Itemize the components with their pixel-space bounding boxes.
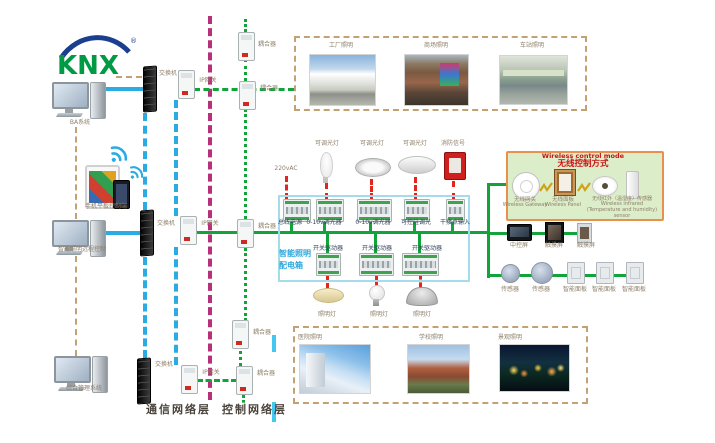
- module-red-mark: [241, 240, 247, 244]
- tan-link-line: [75, 256, 77, 356]
- module-face: [184, 368, 195, 373]
- fire-alarm-icon: [444, 152, 466, 180]
- school-photo: [407, 344, 470, 394]
- coupler-1a: [238, 32, 255, 61]
- module-slots: [362, 261, 391, 268]
- photo-detail: [440, 63, 459, 86]
- knx-logo: KNX ®: [53, 30, 139, 82]
- terminal-strip: [318, 201, 342, 204]
- screen-glass: [580, 227, 589, 239]
- dimmable-ceiling-lamp-icon: [398, 156, 436, 174]
- ip-gateway-1-label: IP网关: [194, 78, 222, 85]
- terminal-strip: [448, 201, 463, 204]
- alarm-face: [449, 158, 461, 173]
- factory-photo: [309, 54, 376, 106]
- mobile-control-label: 手机平板控制端: [66, 204, 146, 211]
- touch-screen-icon: [545, 222, 564, 243]
- module-red-mark: [184, 237, 190, 241]
- station-photo: [499, 55, 568, 105]
- network-switch-2: [140, 210, 154, 257]
- phone-screen: [116, 184, 127, 204]
- green-bus-row3: [197, 379, 237, 382]
- scene-label: 景观照明: [484, 335, 536, 342]
- tablet-screen: [89, 171, 116, 203]
- dimmable-lamp-icon: [320, 152, 333, 178]
- knx-logo-text: KNX: [57, 51, 119, 78]
- blue-backbone-switch: [143, 257, 147, 358]
- terminal-strip: [285, 201, 309, 204]
- knx-registered-mark: ®: [130, 37, 137, 45]
- module-red-mark: [243, 102, 249, 106]
- ip-gateway-3: [181, 365, 198, 394]
- photo-detail: [306, 353, 326, 388]
- module-red-mark: [240, 387, 246, 391]
- module-face: [242, 84, 253, 89]
- coupler-3b: [236, 366, 253, 395]
- wireless-panel-label-en: Wireless Panel: [544, 203, 582, 209]
- panel-keys: [630, 267, 640, 279]
- lamp-label: 照明灯: [309, 312, 345, 319]
- green-right-riser: [487, 183, 490, 278]
- network-switch-3: [137, 358, 151, 405]
- ip-gateway-1: [178, 70, 195, 99]
- central-screen-label: 中控屏: [505, 243, 533, 250]
- module-face: [239, 369, 250, 374]
- ba-system-label: BA系统: [50, 120, 110, 127]
- smart-panel-label: 智能面板: [588, 287, 620, 294]
- monitor-icon: [54, 356, 91, 383]
- wireless-ir-label-en: Wireless infrared (Temperature and humid…: [586, 202, 658, 219]
- terminal-strip: [318, 255, 339, 258]
- green-riser: [244, 19, 247, 32]
- touch-screen-label: 触摸屏: [541, 243, 567, 250]
- smart-panel-icon: [567, 262, 585, 284]
- terminal-strip: [406, 201, 428, 204]
- power-input-label: 220vAC: [272, 166, 300, 173]
- switch-actuator-label: 开关驱动器: [407, 246, 447, 253]
- smart-panel-label: 智能面板: [559, 287, 591, 294]
- landscape-photo: [499, 344, 570, 392]
- module-face: [235, 323, 246, 328]
- keyboard-icon: [56, 113, 83, 117]
- mall-photo: [404, 54, 469, 106]
- terminal-strip: [318, 271, 339, 274]
- coupler-2: [237, 219, 254, 248]
- wireless-signal-icon: [577, 179, 592, 198]
- green-branch-wireless: [489, 183, 506, 186]
- central-control-screen-icon: [507, 224, 532, 241]
- blue-link-pc1-switch1: [106, 87, 143, 91]
- coupler-1b-label: 耦合器: [256, 86, 282, 93]
- bulb-lamp-icon: [369, 285, 385, 301]
- comm-layer-label: 通信网络层: [146, 401, 211, 417]
- green-branch-panels: [583, 274, 597, 277]
- green-riser: [244, 59, 247, 81]
- module-face: [240, 222, 251, 227]
- cabinet-title-line2: 配电箱: [279, 261, 321, 270]
- cabinet-title-line1: 智能照明: [279, 249, 321, 258]
- terminal-strip: [361, 255, 392, 258]
- dimmer-1-label: 0-10v调光器: [302, 220, 346, 227]
- gateway-ring: [520, 180, 533, 193]
- sensor-label: 传感器: [496, 287, 524, 294]
- module-slots: [360, 207, 389, 214]
- dimmable-lamp-label: 可调光灯: [356, 141, 388, 148]
- ip-gateway-2-label: IP网关: [196, 221, 224, 228]
- hospital-photo: [299, 344, 371, 394]
- module-face: [241, 35, 252, 40]
- layer-divider-line: [208, 16, 212, 400]
- terminal-strip: [404, 271, 437, 274]
- dry-contact-label: 干接点输入: [436, 220, 474, 227]
- wireless-panel-icon: [554, 169, 576, 196]
- bulb-base: [373, 299, 379, 306]
- smart-panel-icon: [626, 262, 644, 284]
- module-red-mark: [236, 341, 242, 345]
- screen-glass: [510, 227, 529, 237]
- control-layer-label: 控制网络层: [222, 401, 287, 417]
- dimmable-downlight-icon: [355, 158, 391, 177]
- sensor-lens: [602, 183, 608, 189]
- coupler-3a-label: 耦合器: [249, 330, 275, 337]
- sensor-icon: [531, 262, 553, 284]
- photo-detail: [503, 70, 563, 76]
- lamp-label: 照明灯: [404, 312, 440, 319]
- ba-system-computer: [52, 82, 106, 120]
- photo-detail: [500, 345, 569, 391]
- module-red-mark: [182, 91, 188, 95]
- scene-label: 学校照明: [403, 335, 459, 342]
- monitor-icon: [52, 82, 89, 109]
- sensor-icon: [501, 264, 520, 283]
- scene-label: 医院照明: [284, 335, 336, 342]
- sensor-label: 传感器: [527, 287, 555, 294]
- dimmer-2-label: 0-10v调光器: [351, 220, 395, 227]
- knx-logo-icon: KNX ®: [53, 30, 139, 78]
- cyan-segment: [272, 335, 276, 352]
- terminal-strip: [359, 201, 390, 204]
- blue-backbone-switch: [143, 113, 147, 210]
- module-slots: [449, 207, 462, 214]
- green-branch-panels: [487, 274, 502, 277]
- dimmable-lamp-label: 可调光灯: [399, 141, 431, 148]
- scene-label: 商场照明: [406, 43, 466, 50]
- wireless-gateway-icon: [512, 172, 540, 200]
- coupler-1b: [239, 81, 256, 110]
- green-branch-screens: [487, 232, 507, 235]
- ip-gateway-2: [180, 216, 197, 245]
- green-riser: [244, 248, 247, 321]
- module-slots: [319, 207, 341, 214]
- wireless-signal-icon: [539, 179, 554, 198]
- tower-icon: [90, 82, 106, 119]
- scr-dimmer-label: 可控硅调光: [398, 220, 434, 227]
- terminal-strip: [404, 255, 437, 258]
- wireless-gateway-label-en: Wireless Gateway: [500, 203, 550, 209]
- switch-actuator-3: [402, 253, 439, 276]
- module-slots: [407, 207, 427, 214]
- green-branch-panels: [613, 274, 627, 277]
- wireless-ir-sensor-icon: [592, 176, 618, 196]
- coupler-3a: [232, 320, 249, 349]
- scene-label: 车站照明: [502, 43, 562, 50]
- terminal-strip: [361, 271, 392, 274]
- switch-actuator-label: 开关驱动器: [357, 246, 397, 253]
- remote-control-label: 智能照明远程控制: [42, 247, 122, 254]
- green-riser: [244, 109, 247, 219]
- lamp-base: [323, 177, 328, 183]
- module-red-mark: [185, 386, 191, 390]
- smart-panel-label: 智能面板: [618, 287, 650, 294]
- knx-lighting-topology-diagram: KNX ® BA系统 手机平板控制端 智能照明远程控制 综合管理系统 交换机 I…: [0, 0, 715, 443]
- panel-face: [559, 174, 571, 191]
- dimmable-lamp-label: 可调光灯: [311, 141, 343, 148]
- module-slots: [405, 261, 436, 268]
- smart-panel-icon: [596, 262, 614, 284]
- blue-backbone-gateway: [174, 100, 178, 216]
- module-slots: [286, 207, 308, 214]
- scene-label: 工厂照明: [311, 43, 371, 50]
- switch-actuator-2: [359, 253, 394, 276]
- monitor-icon: [52, 220, 89, 247]
- touch-screen-icon: [577, 223, 592, 243]
- module-face: [181, 73, 192, 78]
- screen-glass: [548, 225, 561, 240]
- touch-screen-label: 触摸屏: [573, 243, 599, 250]
- humidity-sensor-icon: [626, 171, 639, 199]
- coupler-1a-label: 耦合器: [254, 42, 280, 49]
- module-red-mark: [242, 53, 248, 57]
- ip-gateway-3-label: IP网关: [197, 370, 225, 377]
- coupler-3b-label: 耦合器: [253, 371, 279, 378]
- shade-lamp-icon: [406, 287, 438, 306]
- blue-backbone-gateway: [174, 247, 178, 365]
- management-system-label: 综合管理系统: [48, 386, 120, 393]
- ceiling-lamp-icon: [313, 288, 344, 303]
- fire-signal-label: 消防信号: [437, 141, 469, 148]
- wireless-title-cn: 无线控制方式: [506, 160, 660, 170]
- green-branch-panels: [518, 274, 532, 277]
- lamp-label: 照明灯: [361, 312, 397, 319]
- panel-keys: [571, 267, 581, 279]
- switch-3-label: 交换机: [151, 362, 177, 369]
- panel-keys: [600, 267, 610, 279]
- green-branch-panels: [551, 274, 568, 277]
- module-face: [183, 219, 194, 224]
- module-slots: [319, 261, 338, 268]
- switch-2-label: 交换机: [153, 221, 179, 228]
